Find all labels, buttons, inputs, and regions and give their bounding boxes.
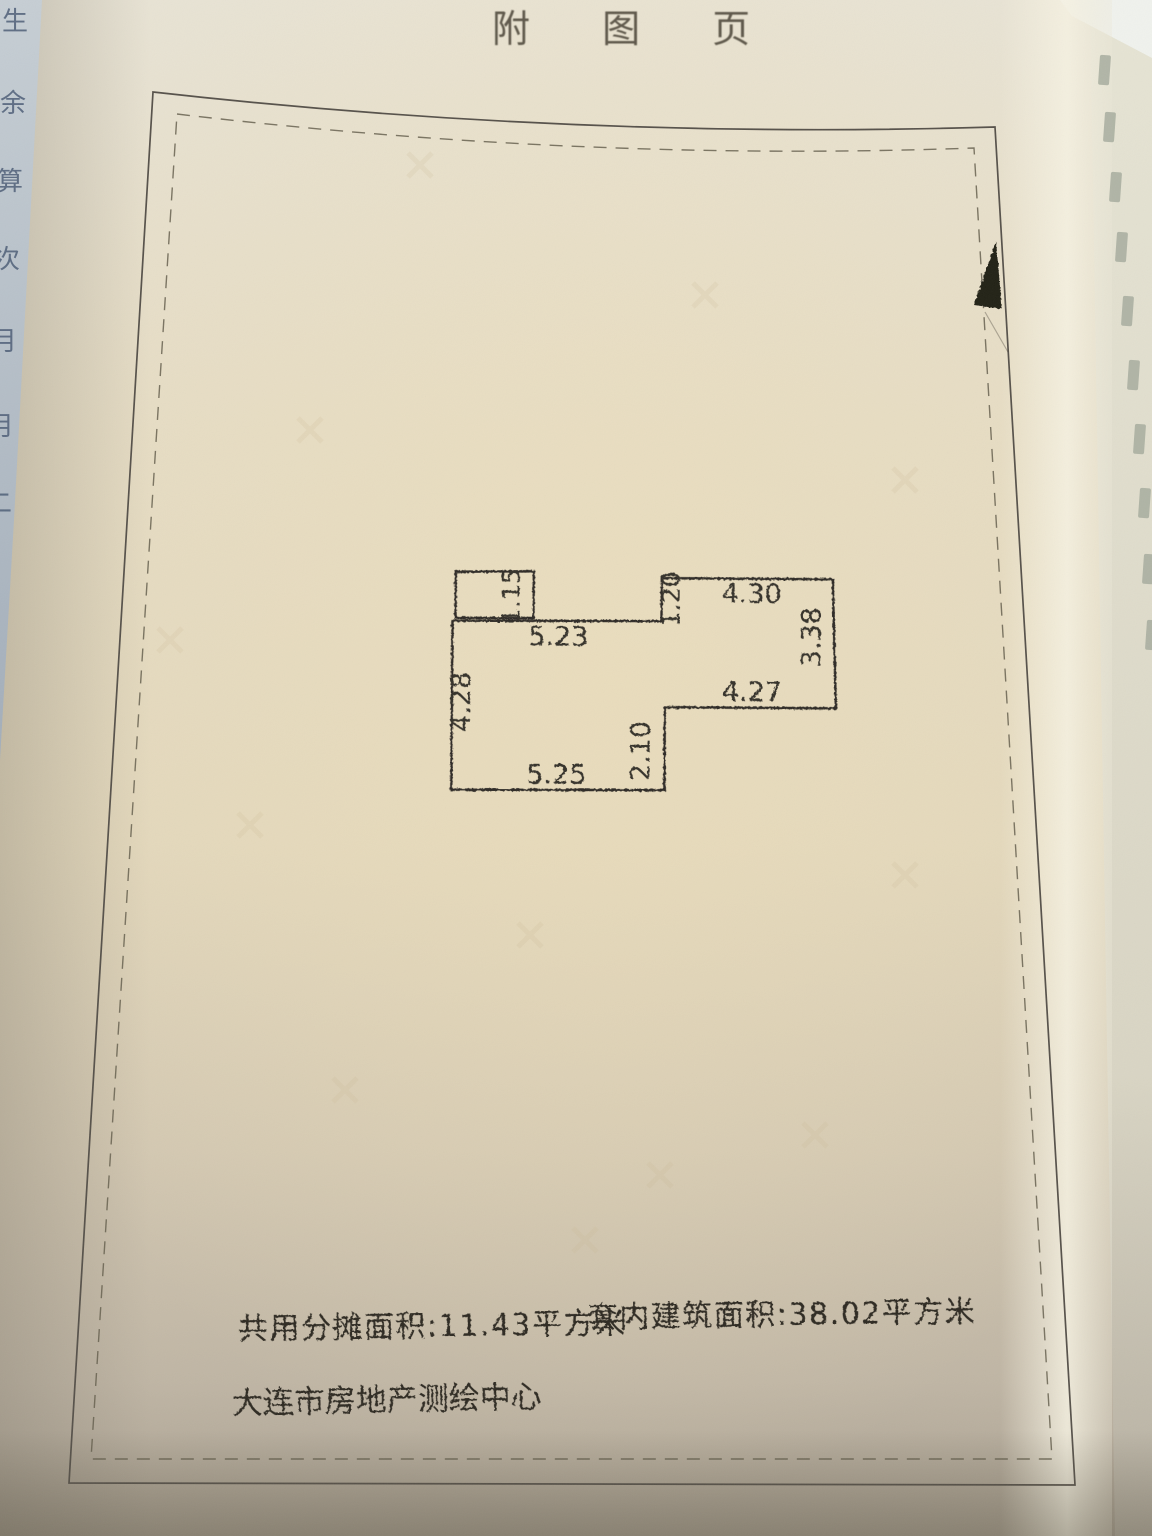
document-photo: 生 余 算 次 月 月 二 附 图 页 1.15 5.23 4.28 5.25 …	[0, 0, 1152, 1536]
attached-drawing-page: 生 余 算 次 月 月 二 附 图 页 1.15 5.23 4.28 5.25 …	[0, 0, 1152, 1536]
paper-grain	[0, 0, 1152, 1536]
